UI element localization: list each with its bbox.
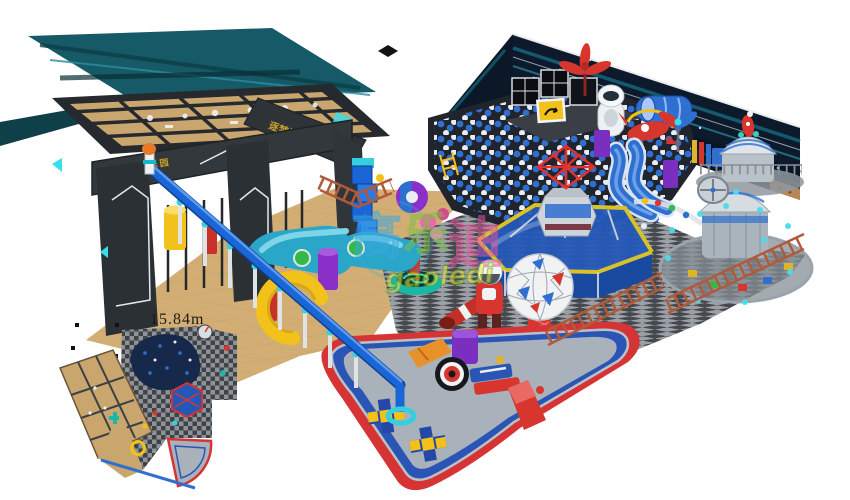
watermark-latin: gaoledi: [385, 259, 496, 295]
dimension-diamond-marker: [378, 45, 398, 57]
yellow-pillar: [164, 210, 186, 250]
watermark-char-1: 高: [352, 208, 402, 266]
dimension-label: 15.84m: [150, 311, 204, 328]
striped-poles: [692, 140, 711, 167]
purple-pillar-b: [663, 160, 678, 188]
arrow-sign: [537, 99, 564, 122]
purple-pillar-a: [594, 130, 610, 157]
watermark-char-2: 乐: [404, 209, 448, 260]
radar-dish-icon: [698, 177, 728, 203]
toddler-fan-area: [321, 322, 639, 490]
playground-render: 逐梦站台 YIQ乐园: [0, 0, 850, 500]
robot-figure: [598, 85, 624, 136]
dome-tower: [537, 188, 596, 236]
floor-plan-inset: 15.84m: [60, 311, 237, 488]
